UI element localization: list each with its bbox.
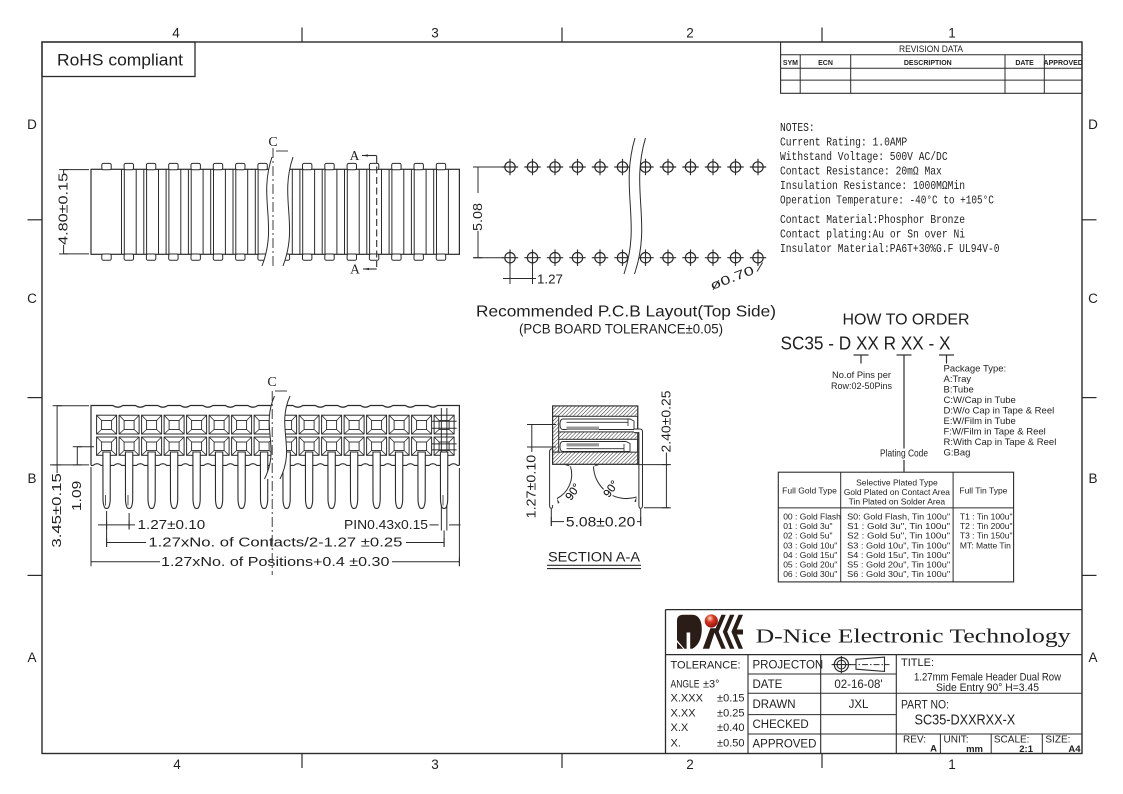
svg-text:B: B — [27, 471, 36, 486]
svg-text:PROJECTON: PROJECTON — [753, 660, 824, 672]
svg-text:DESCRIPTION: DESCRIPTION — [904, 60, 952, 67]
svg-text:3.45±0.15: 3.45±0.15 — [50, 473, 64, 547]
svg-text:1.27: 1.27 — [537, 273, 563, 287]
svg-text:T2 : Tin 200u": T2 : Tin 200u" — [960, 521, 1013, 531]
svg-text:5.08: 5.08 — [471, 203, 485, 231]
svg-text:2: 2 — [686, 757, 694, 772]
svg-text:mm: mm — [966, 744, 983, 755]
svg-text:F:W/Film in Tape & Reel: F:W/Film in Tape & Reel — [944, 427, 1046, 438]
svg-text:±0.40: ±0.40 — [717, 722, 744, 734]
svg-text:Plating Code: Plating Code — [880, 449, 928, 460]
svg-text:Current Rating: 1.0AMP: Current Rating: 1.0AMP — [780, 136, 907, 150]
svg-text:X.XXX: X.XXX — [671, 693, 704, 705]
svg-text:05 : Gold 20u": 05 : Gold 20u" — [783, 560, 837, 570]
svg-text:A: A — [1088, 650, 1097, 665]
svg-text:2: 2 — [686, 26, 694, 41]
svg-text:T1 : Tin 100u": T1 : Tin 100u" — [960, 512, 1013, 522]
svg-text:A: A — [930, 744, 937, 755]
svg-text:HOW TO ORDER: HOW TO ORDER — [843, 312, 970, 329]
svg-text:3: 3 — [431, 757, 439, 772]
svg-text:Withstand Voltage: 500V AC/DC: Withstand Voltage: 500V AC/DC — [780, 150, 948, 164]
svg-text:TOLERANCE:: TOLERANCE: — [671, 660, 741, 672]
svg-text:Row:02-50Pins: Row:02-50Pins — [831, 381, 892, 392]
svg-text:02 : Gold 5u": 02 : Gold 5u" — [783, 531, 832, 541]
svg-text:PART NO:: PART NO: — [901, 700, 949, 712]
svg-text:Gold Plated on Contact Area: Gold Plated on Contact Area — [844, 487, 950, 497]
svg-text:00 : Gold Flash: 00 : Gold Flash — [783, 512, 841, 522]
svg-text:C: C — [1088, 291, 1098, 306]
svg-text:S5 : Gold 20u", Tin 100u": S5 : Gold 20u", Tin 100u" — [847, 560, 950, 570]
svg-text:Side Entry 90° H=3.45: Side Entry 90° H=3.45 — [936, 682, 1039, 694]
svg-text:±0.50: ±0.50 — [717, 738, 744, 750]
svg-text:4: 4 — [173, 757, 181, 772]
svg-text:RoHS compliant: RoHS compliant — [57, 51, 183, 70]
svg-text:01 : Gold 3u": 01 : Gold 3u" — [783, 521, 832, 531]
svg-text:REVISION DATA: REVISION DATA — [899, 44, 964, 55]
svg-text:DRAWN: DRAWN — [753, 699, 796, 711]
svg-text:5.08±0.20: 5.08±0.20 — [566, 514, 635, 529]
svg-text:SC35-DXXRXX-X: SC35-DXXRXX-X — [915, 712, 1016, 729]
svg-text:DATE: DATE — [1015, 60, 1034, 67]
svg-text:04 : Gold 15u": 04 : Gold 15u" — [783, 550, 837, 560]
svg-text:REV:: REV: — [903, 735, 926, 746]
svg-text:Operation Temperature: -40°C t: Operation Temperature: -40°C to +105°C — [780, 194, 994, 208]
svg-text:A:Tray: A:Tray — [944, 374, 972, 385]
svg-text:C: C — [267, 375, 276, 390]
svg-text:(PCB BOARD TOLERANCE±0.05): (PCB BOARD TOLERANCE±0.05) — [519, 322, 723, 337]
svg-text:±0.15: ±0.15 — [717, 693, 744, 705]
svg-text:APPROVED: APPROVED — [1044, 60, 1083, 67]
svg-text:R:With Cap in Tape & Reel: R:With Cap in Tape & Reel — [944, 437, 1057, 448]
svg-text:T3 : Tin 150u": T3 : Tin 150u" — [960, 531, 1013, 541]
svg-text:Full Tin Type: Full Tin Type — [959, 486, 1007, 496]
svg-text:S4 : Gold 15u", Tin 100u": S4 : Gold 15u", Tin 100u" — [847, 550, 950, 560]
svg-text:SC35 - D XX R XX - X: SC35 - D XX R XX - X — [781, 333, 951, 354]
svg-text:A: A — [350, 262, 360, 277]
svg-text:DATE: DATE — [753, 679, 783, 691]
svg-text:03 : Gold 10u": 03 : Gold 10u" — [783, 540, 837, 550]
svg-text:G:Bag: G:Bag — [944, 448, 971, 459]
svg-text:1: 1 — [948, 757, 956, 772]
svg-text:S6 : Gold 30u", Tin 100u": S6 : Gold 30u", Tin 100u" — [847, 569, 950, 579]
svg-text:D: D — [27, 117, 37, 132]
svg-text:S3 : Gold 10u", Tin 100u": S3 : Gold 10u", Tin 100u" — [847, 540, 950, 550]
svg-text:JXL: JXL — [849, 699, 869, 711]
svg-text:06 : Gold 30u": 06 : Gold 30u" — [783, 569, 837, 579]
svg-text:E:W/Film in Tube: E:W/Film in Tube — [944, 416, 1016, 427]
svg-text:B: B — [1088, 471, 1097, 486]
svg-text:APPROVED: APPROVED — [753, 739, 817, 751]
svg-text:Package Type:: Package Type: — [944, 364, 1007, 375]
svg-text:A: A — [350, 148, 360, 163]
svg-text:SECTION A-A: SECTION A-A — [548, 550, 640, 565]
svg-text:ECN: ECN — [818, 60, 833, 67]
svg-text:2:1: 2:1 — [1019, 744, 1033, 755]
svg-text:Insulator Material:PA6T+30%G.F: Insulator Material:PA6T+30%G.F UL94V-0 — [780, 242, 1000, 256]
svg-text:B:Tube: B:Tube — [944, 385, 974, 396]
svg-text:A4: A4 — [1068, 744, 1081, 755]
svg-text:Contact plating:Au or Sn over: Contact plating:Au or Sn over Ni — [780, 228, 965, 242]
svg-text:CHECKED: CHECKED — [753, 719, 809, 731]
svg-text:D:W/o Cap in Tape & Reel: D:W/o Cap in Tape & Reel — [944, 406, 1055, 417]
svg-text:Contact Material:Phosphor Bron: Contact Material:Phosphor Bronze — [780, 213, 965, 227]
svg-text:NOTES:: NOTES: — [780, 121, 815, 135]
svg-text:MT: Matte Tin: MT: Matte Tin — [960, 540, 1011, 550]
svg-text:Selective Plated Type: Selective Plated Type — [856, 478, 938, 488]
svg-text:C: C — [268, 135, 277, 150]
svg-text:S0: Gold Flash, Tin 100u": S0: Gold Flash, Tin 100u" — [847, 512, 950, 522]
svg-text:No.of Pins per: No.of Pins per — [832, 370, 891, 381]
svg-text:1.27xNo. of Contacts/2-1.27 ±0: 1.27xNo. of Contacts/2-1.27 ±0.25 — [148, 535, 402, 549]
svg-text:1.27xNo. of Positions+0.4 ±0.3: 1.27xNo. of Positions+0.4 ±0.30 — [161, 555, 389, 569]
svg-text:C: C — [27, 291, 37, 306]
svg-text:1.09: 1.09 — [70, 481, 84, 511]
svg-text:D: D — [1088, 117, 1098, 132]
svg-text:S1 : Gold 3u", Tin 100u": S1 : Gold 3u", Tin 100u" — [847, 521, 950, 531]
svg-text:C:W/Cap in Tube: C:W/Cap in Tube — [944, 395, 1016, 406]
svg-text:X.: X. — [671, 738, 681, 750]
svg-text:Insulation Resistance: 1000MΩM: Insulation Resistance: 1000MΩMin — [780, 179, 965, 193]
svg-text:SYM: SYM — [783, 60, 798, 67]
svg-text:Tin Plated on Solder Area: Tin Plated on Solder Area — [849, 497, 946, 507]
svg-text:4: 4 — [172, 26, 180, 41]
svg-text:±0.25: ±0.25 — [717, 707, 744, 719]
svg-text:1.27±0.10: 1.27±0.10 — [525, 455, 539, 519]
svg-text:Recommended P.C.B Layout(Top S: Recommended P.C.B Layout(Top Side) — [476, 304, 776, 321]
svg-text:ANGLE: ANGLE — [671, 679, 700, 691]
svg-text:Contact Resistance: 20mΩ Max: Contact Resistance: 20mΩ Max — [780, 165, 942, 179]
svg-text:X.X: X.X — [671, 722, 689, 734]
svg-text:TITLE:: TITLE: — [901, 657, 934, 669]
svg-text:2.40±0.25: 2.40±0.25 — [659, 390, 673, 452]
svg-text:X.XX: X.XX — [671, 707, 697, 719]
svg-text:A: A — [27, 650, 36, 665]
svg-text:02-16-08': 02-16-08' — [834, 679, 882, 691]
svg-text:Full Gold Type: Full Gold Type — [782, 486, 837, 496]
svg-text:PIN0.43x0.15: PIN0.43x0.15 — [344, 518, 428, 532]
svg-text:3: 3 — [431, 26, 439, 41]
svg-text:±3°: ±3° — [703, 679, 720, 691]
svg-text:4.80±0.15: 4.80±0.15 — [57, 173, 71, 245]
svg-text:1.27±0.10: 1.27±0.10 — [138, 518, 206, 532]
svg-text:1: 1 — [948, 26, 956, 41]
svg-text:S2 : Gold 5u", Tin 100u": S2 : Gold 5u", Tin 100u" — [847, 531, 950, 541]
svg-text:D-Nice Electronic Technology: D-Nice Electronic Technology — [756, 626, 1071, 648]
svg-text:UNIT:: UNIT: — [944, 735, 969, 746]
svg-text:SIZE:: SIZE: — [1045, 735, 1070, 746]
